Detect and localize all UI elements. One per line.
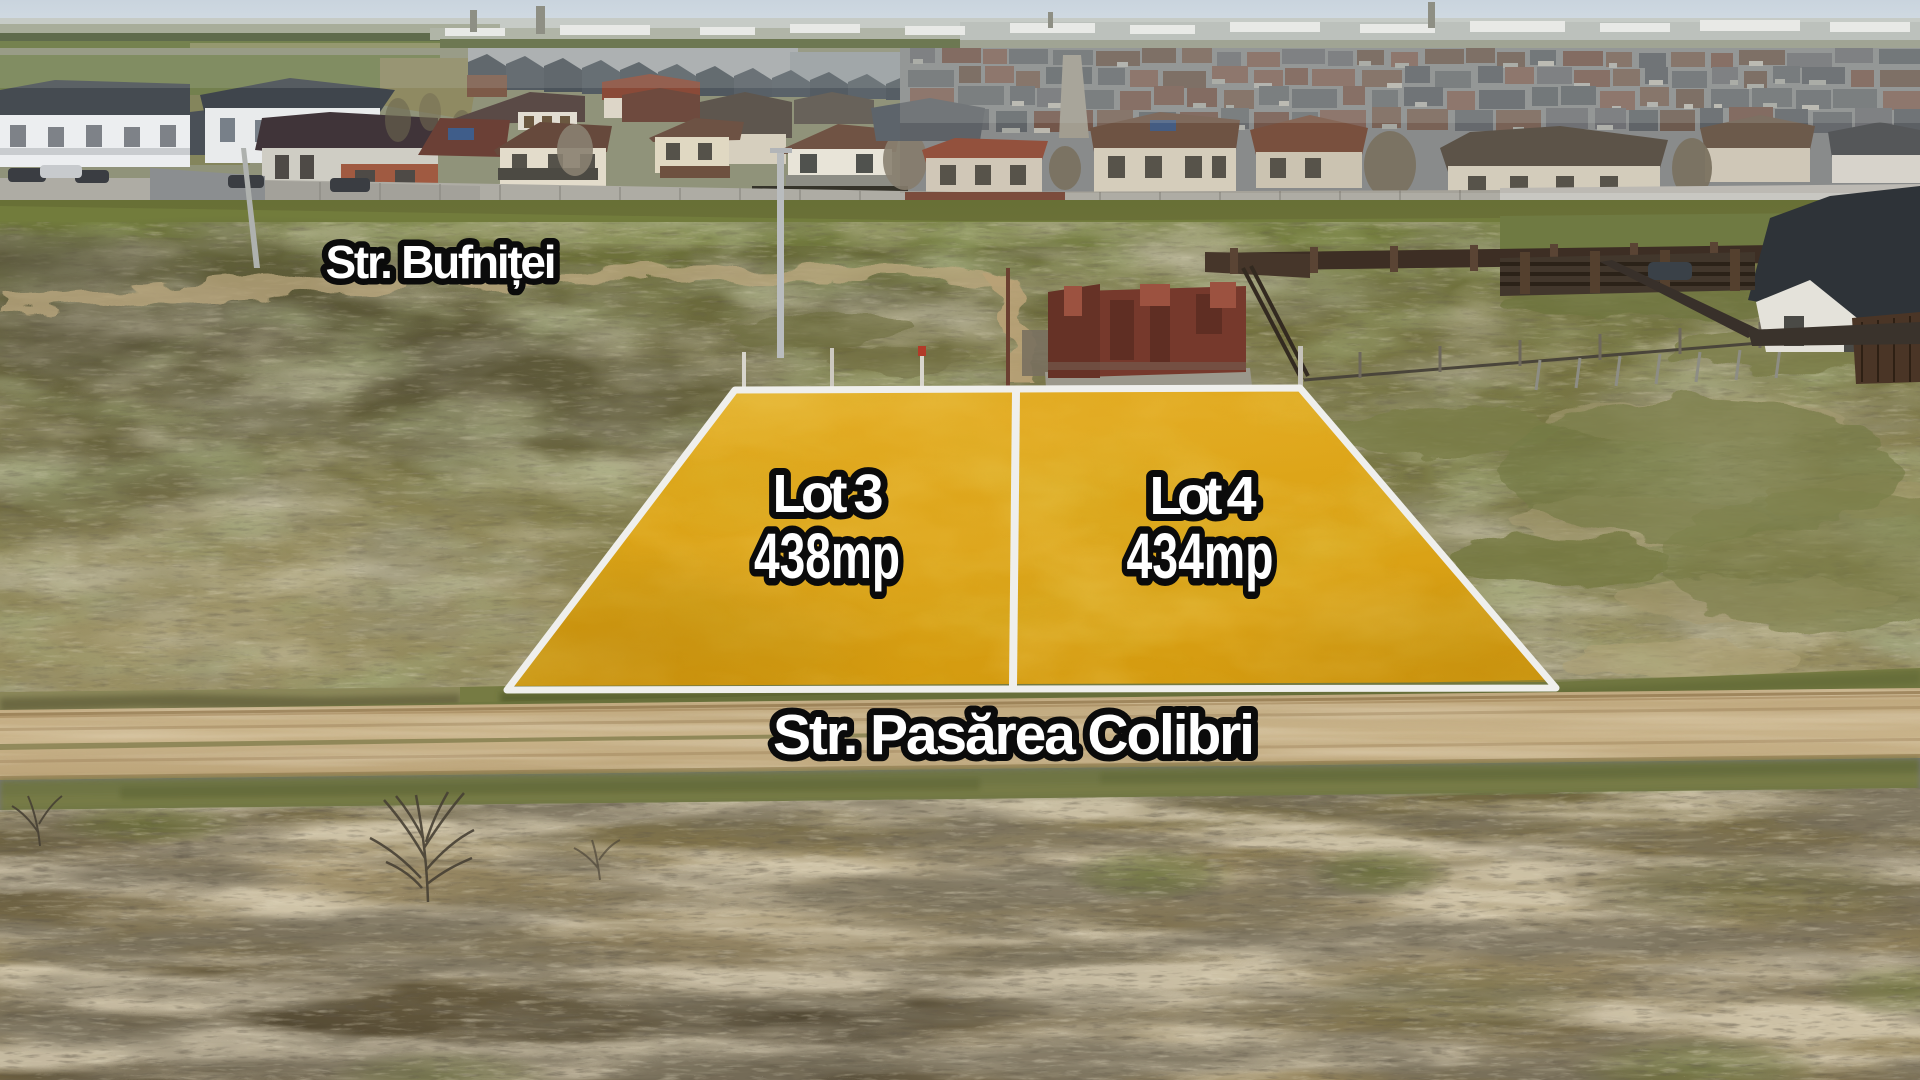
svg-text:434mp: 434mp <box>1127 520 1274 592</box>
svg-text:Lot 3: Lot 3 <box>773 464 884 524</box>
svg-text:Str. Bufniței: Str. Bufniței <box>326 236 557 289</box>
svg-text:Lot 4: Lot 4 <box>1150 466 1257 526</box>
svg-text:438mp: 438mp <box>754 520 900 592</box>
svg-text:Str. Pasărea Colibri: Str. Pasărea Colibri <box>773 703 1255 767</box>
